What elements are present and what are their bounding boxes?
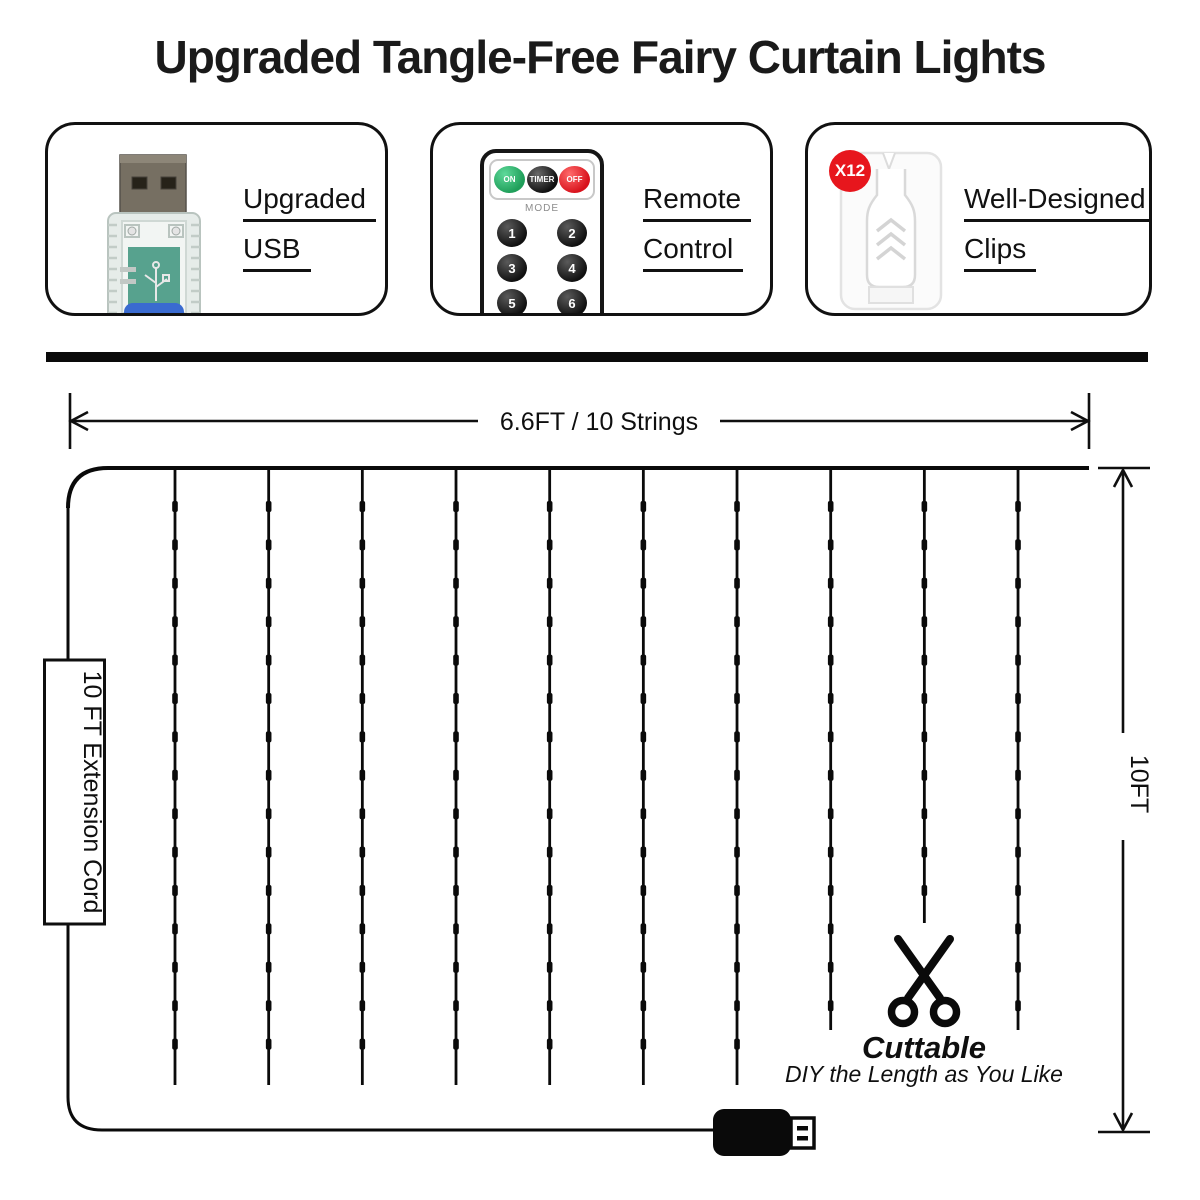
- led-light: [266, 923, 272, 934]
- feature-card-clips: X12 Well-Designed Clips: [805, 122, 1152, 316]
- led-light: [453, 1000, 459, 1011]
- led-light: [641, 539, 647, 550]
- led-light: [266, 962, 272, 973]
- led-light: [734, 731, 740, 742]
- curtain-rail: [68, 468, 1089, 508]
- led-light: [453, 693, 459, 704]
- led-light: [453, 578, 459, 589]
- led-light: [266, 655, 272, 666]
- section-divider: [46, 352, 1148, 362]
- led-light: [828, 808, 834, 819]
- led-light: [360, 923, 366, 934]
- led-light: [547, 501, 553, 512]
- led-light: [922, 885, 928, 896]
- led-light: [453, 616, 459, 627]
- remote-mode-button: 3: [497, 254, 527, 282]
- led-light: [360, 1000, 366, 1011]
- remote-mode-button: 4: [557, 254, 587, 282]
- led-light: [360, 847, 366, 858]
- led-light: [1015, 616, 1021, 627]
- led-light: [734, 501, 740, 512]
- led-light: [547, 923, 553, 934]
- led-light: [547, 731, 553, 742]
- led-light: [1015, 847, 1021, 858]
- remote-on-button: ON: [494, 166, 525, 193]
- usb-plug-icon: [98, 151, 210, 316]
- led-light: [828, 693, 834, 704]
- width-dimension: 6.6FT / 10 Strings: [70, 393, 1089, 449]
- led-light: [734, 847, 740, 858]
- extension-cord-lower: [68, 924, 714, 1130]
- led-light: [641, 616, 647, 627]
- led-light: [172, 731, 178, 742]
- led-light: [547, 616, 553, 627]
- led-light: [828, 885, 834, 896]
- led-light: [453, 962, 459, 973]
- led-light: [266, 808, 272, 819]
- led-light: [734, 962, 740, 973]
- width-dimension-label: 6.6FT / 10 Strings: [500, 408, 698, 436]
- remote-button-grid: 12345678: [484, 219, 600, 316]
- led-light: [266, 578, 272, 589]
- remote-mode-label: MODE: [484, 203, 600, 214]
- led-light: [453, 731, 459, 742]
- remote-mode-button: 5: [497, 289, 527, 316]
- led-light: [547, 885, 553, 896]
- led-light: [172, 1039, 178, 1050]
- cuttable-title: Cuttable: [862, 1030, 986, 1065]
- led-light: [734, 655, 740, 666]
- led-light: [734, 616, 740, 627]
- led-light: [266, 731, 272, 742]
- led-light: [1015, 655, 1021, 666]
- cuttable-note: DIY the Length as You Like: [785, 1061, 1063, 1087]
- led-light: [172, 770, 178, 781]
- led-light: [453, 923, 459, 934]
- led-light: [360, 1039, 366, 1050]
- light-strings: [172, 468, 1021, 1085]
- led-light: [734, 1000, 740, 1011]
- led-light: [360, 616, 366, 627]
- remote-timer-button: TIMER: [527, 166, 558, 193]
- remote-mode-button: 1: [497, 219, 527, 247]
- extension-cord-label: 10 FT Extension Cord: [78, 671, 106, 914]
- led-light: [360, 655, 366, 666]
- height-dimension-label: 10FT: [1125, 755, 1153, 813]
- cuttable-callout: Cuttable DIY the Length as You Like: [785, 939, 1063, 1087]
- feature-label-usb: Upgraded USB: [243, 185, 376, 272]
- led-light: [360, 539, 366, 550]
- led-light: [641, 885, 647, 896]
- led-light: [266, 539, 272, 550]
- led-light: [641, 847, 647, 858]
- remote-off-button: OFF: [559, 166, 590, 193]
- led-light: [360, 962, 366, 973]
- led-light: [547, 847, 553, 858]
- led-light: [1015, 770, 1021, 781]
- led-light: [1015, 1000, 1021, 1011]
- feature-remote-line2: Control: [643, 235, 743, 272]
- feature-usb-line2: USB: [243, 235, 311, 272]
- led-light: [828, 539, 834, 550]
- led-light: [453, 501, 459, 512]
- led-light: [922, 731, 928, 742]
- led-light: [266, 770, 272, 781]
- led-light: [172, 578, 178, 589]
- led-light: [360, 885, 366, 896]
- led-light: [172, 501, 178, 512]
- led-light: [922, 501, 928, 512]
- led-light: [828, 655, 834, 666]
- led-light: [266, 1000, 272, 1011]
- led-light: [172, 923, 178, 934]
- led-light: [922, 808, 928, 819]
- led-light: [172, 1000, 178, 1011]
- feature-card-usb: Upgraded USB: [45, 122, 388, 316]
- led-light: [360, 770, 366, 781]
- feature-card-remote: ON TIMER OFF MODE 12345678 Remote Contro…: [430, 122, 773, 316]
- led-light: [360, 693, 366, 704]
- led-light: [922, 770, 928, 781]
- led-light: [828, 616, 834, 627]
- led-light: [360, 808, 366, 819]
- led-light: [266, 501, 272, 512]
- led-light: [453, 885, 459, 896]
- led-light: [641, 962, 647, 973]
- led-light: [641, 731, 647, 742]
- curtain-diagram: 6.6FT / 10 Strings 10 FT Extension Cord …: [0, 380, 1200, 1200]
- led-light: [922, 655, 928, 666]
- led-light: [828, 501, 834, 512]
- led-light: [641, 693, 647, 704]
- remote-mode-button: 6: [557, 289, 587, 316]
- led-light: [266, 616, 272, 627]
- led-light: [172, 693, 178, 704]
- led-light: [547, 655, 553, 666]
- led-light: [1015, 501, 1021, 512]
- clip-count-badge: X12: [829, 150, 871, 192]
- led-light: [453, 539, 459, 550]
- led-light: [734, 578, 740, 589]
- usb-plug-end-icon: [713, 1109, 814, 1156]
- led-light: [828, 847, 834, 858]
- led-light: [922, 616, 928, 627]
- led-light: [266, 1039, 272, 1050]
- led-light: [734, 885, 740, 896]
- led-light: [1015, 962, 1021, 973]
- led-light: [734, 539, 740, 550]
- led-light: [1015, 731, 1021, 742]
- feature-label-clips: Well-Designed Clips: [964, 185, 1152, 272]
- feature-usb-line1: Upgraded: [243, 185, 376, 222]
- led-light: [547, 808, 553, 819]
- led-light: [828, 923, 834, 934]
- led-light: [641, 655, 647, 666]
- led-light: [641, 501, 647, 512]
- led-light: [266, 693, 272, 704]
- led-light: [266, 885, 272, 896]
- led-light: [547, 539, 553, 550]
- led-light: [360, 501, 366, 512]
- led-light: [922, 693, 928, 704]
- height-dimension: 10FT: [1098, 468, 1153, 1132]
- led-light: [453, 847, 459, 858]
- led-light: [641, 578, 647, 589]
- led-light: [547, 1039, 553, 1050]
- remote-mode-button: 2: [557, 219, 587, 247]
- led-light: [734, 808, 740, 819]
- led-light: [1015, 808, 1021, 819]
- led-light: [828, 770, 834, 781]
- led-light: [641, 923, 647, 934]
- led-light: [641, 808, 647, 819]
- led-light: [547, 770, 553, 781]
- led-light: [922, 578, 928, 589]
- led-light: [453, 655, 459, 666]
- led-light: [828, 578, 834, 589]
- led-light: [172, 616, 178, 627]
- led-light: [172, 655, 178, 666]
- led-light: [1015, 693, 1021, 704]
- led-light: [547, 1000, 553, 1011]
- remote-power-panel: ON TIMER OFF: [489, 159, 595, 200]
- led-light: [828, 1000, 834, 1011]
- feature-label-remote: Remote Control: [643, 185, 751, 272]
- feature-clips-line2: Clips: [964, 235, 1036, 272]
- led-light: [828, 731, 834, 742]
- led-light: [1015, 578, 1021, 589]
- led-light: [734, 693, 740, 704]
- led-light: [547, 578, 553, 589]
- led-light: [360, 578, 366, 589]
- led-light: [547, 693, 553, 704]
- page-title: Upgraded Tangle-Free Fairy Curtain Light…: [0, 30, 1200, 84]
- led-light: [172, 885, 178, 896]
- extension-cord-label-box: 10 FT Extension Cord: [45, 660, 107, 924]
- led-light: [266, 847, 272, 858]
- led-light: [734, 923, 740, 934]
- feature-clips-line1: Well-Designed: [964, 185, 1152, 222]
- led-light: [641, 770, 647, 781]
- scissors-icon: [892, 939, 957, 1024]
- led-light: [734, 1039, 740, 1050]
- led-light: [172, 962, 178, 973]
- led-light: [1015, 539, 1021, 550]
- led-light: [172, 808, 178, 819]
- led-light: [1015, 885, 1021, 896]
- led-light: [641, 1000, 647, 1011]
- remote-control-icon: ON TIMER OFF MODE 12345678: [480, 149, 604, 316]
- led-light: [172, 847, 178, 858]
- led-light: [172, 539, 178, 550]
- led-light: [922, 539, 928, 550]
- led-light: [360, 731, 366, 742]
- led-light: [547, 962, 553, 973]
- feature-remote-line1: Remote: [643, 185, 751, 222]
- led-light: [1015, 923, 1021, 934]
- led-light: [453, 770, 459, 781]
- led-light: [641, 1039, 647, 1050]
- led-light: [828, 962, 834, 973]
- led-light: [453, 1039, 459, 1050]
- led-light: [453, 808, 459, 819]
- led-light: [922, 847, 928, 858]
- led-light: [734, 770, 740, 781]
